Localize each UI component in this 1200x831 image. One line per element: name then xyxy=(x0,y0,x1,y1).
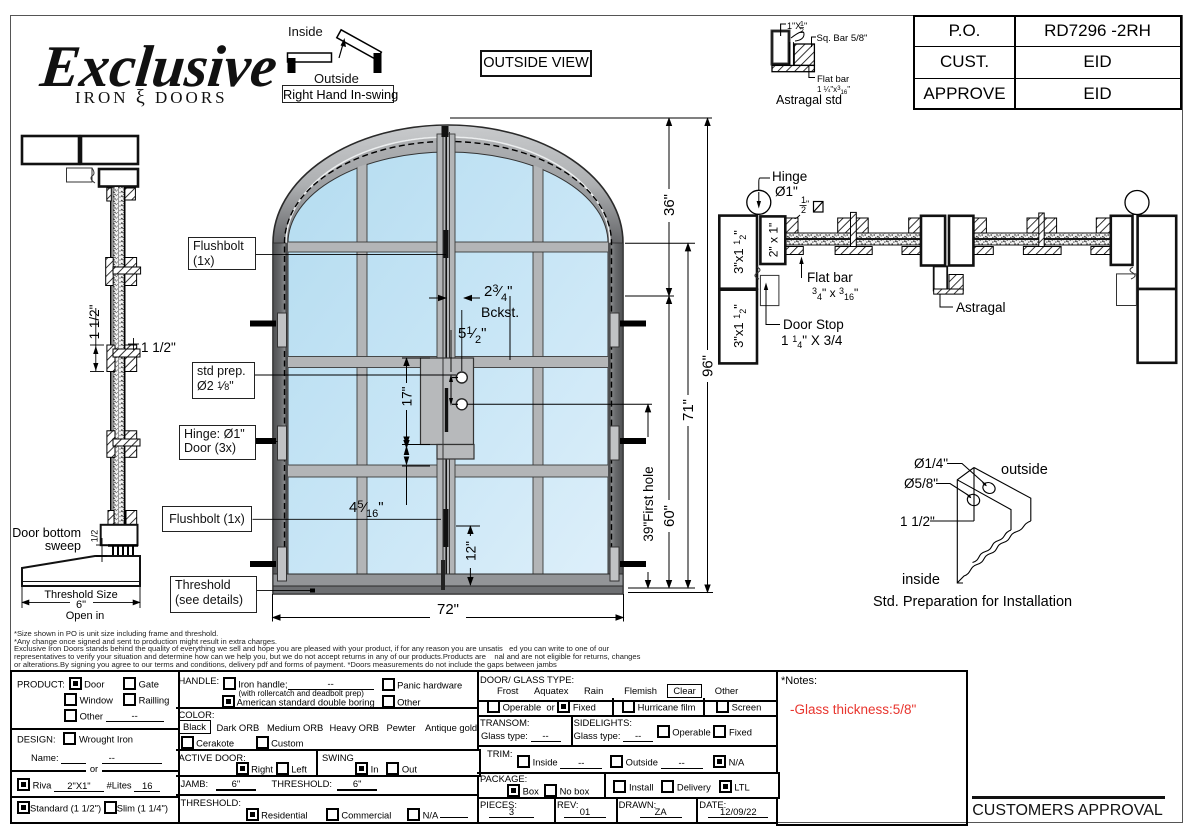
svg-text:inside: inside xyxy=(902,572,940,588)
svg-text:Open in: Open in xyxy=(66,610,105,622)
svg-text:36": 36" xyxy=(661,194,678,216)
svg-text:outside: outside xyxy=(1001,462,1048,478)
svg-text:sweep: sweep xyxy=(45,539,81,553)
svg-text:72": 72" xyxy=(437,601,459,618)
svg-text:": " xyxy=(806,199,809,209)
svg-text:34" x 316": 34" x 316" xyxy=(812,286,858,302)
svg-text:1/2: 1/2 xyxy=(90,530,100,543)
svg-text:71": 71" xyxy=(680,399,697,421)
svg-text:": " xyxy=(804,21,807,31)
svg-text:17": 17" xyxy=(400,386,415,406)
svg-text:1 1/2": 1 1/2" xyxy=(900,514,935,529)
svg-text:96": 96" xyxy=(700,355,717,377)
svg-text:39"First hole: 39"First hole xyxy=(641,466,656,541)
svg-text:Ø1": Ø1" xyxy=(775,184,798,199)
svg-text:1 1/2": 1 1/2" xyxy=(141,340,176,355)
svg-text:Bckst.: Bckst. xyxy=(481,304,519,320)
svg-text:Astragal std: Astragal std xyxy=(776,93,842,107)
svg-text:60": 60" xyxy=(661,505,678,527)
svg-text:Sq. Bar 5/8": Sq. Bar 5/8" xyxy=(817,33,868,44)
svg-text:Ø1/4": Ø1/4" xyxy=(914,456,948,471)
svg-text:Astragal: Astragal xyxy=(956,300,1006,315)
svg-text:2" x 1": 2" x 1" xyxy=(766,223,780,258)
svg-text:Door bottom: Door bottom xyxy=(12,526,81,540)
svg-text:12": 12" xyxy=(463,541,478,561)
svg-text:Door Stop: Door Stop xyxy=(783,317,844,332)
svg-text:Ø5/8": Ø5/8" xyxy=(904,476,938,491)
svg-text:1 1/2": 1 1/2" xyxy=(87,304,102,339)
svg-text:Hinge: Hinge xyxy=(772,169,807,184)
svg-text:Flat bar: Flat bar xyxy=(817,74,849,85)
svg-text:Std. Preparation for Installat: Std. Preparation for Installation xyxy=(873,594,1072,610)
svg-text:Flat bar: Flat bar xyxy=(807,270,853,285)
svg-text:1 14" X 3/4: 1 14" X 3/4 xyxy=(781,333,843,350)
